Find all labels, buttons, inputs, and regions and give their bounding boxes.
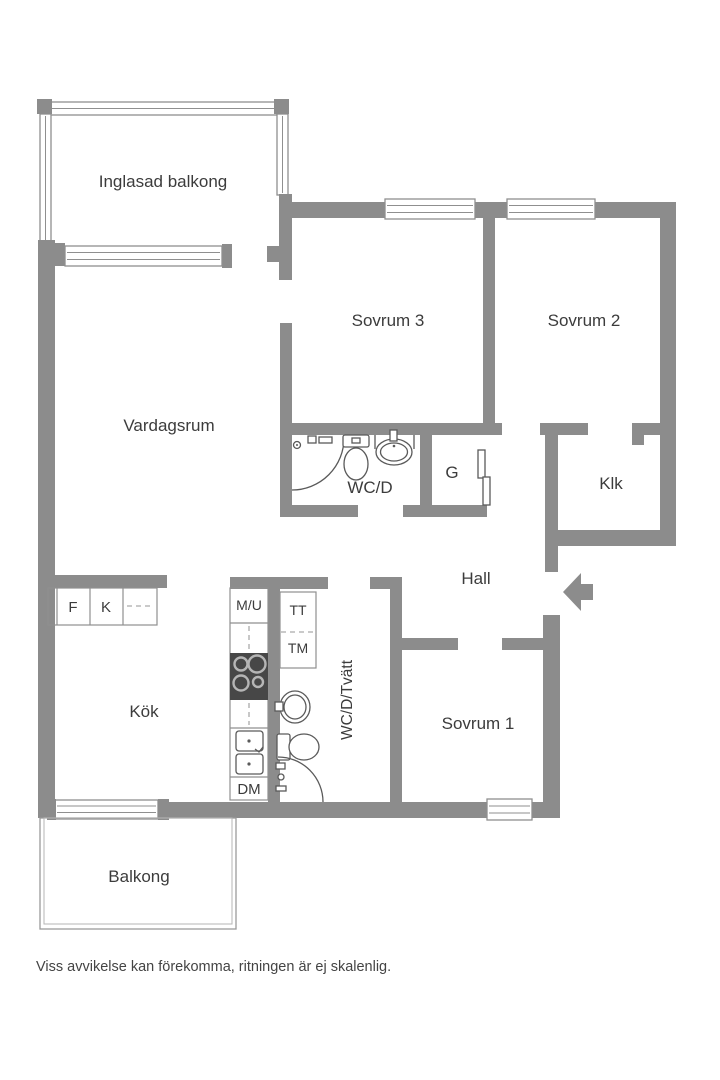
room-label-hall: Hall	[461, 569, 490, 588]
wall-segment-sovrum1-left	[390, 577, 402, 818]
toilet-bowl-icon	[289, 734, 319, 760]
window-end-cap	[47, 799, 56, 820]
wall-segment-left	[38, 240, 55, 818]
burner-icon	[235, 658, 248, 671]
wall-corner	[38, 243, 65, 266]
toilet-button-icon	[352, 438, 360, 443]
wall-segment-wcd-g-divider	[420, 432, 432, 505]
wall-segment-kitchen-top	[38, 575, 167, 588]
closet-door-leaf	[478, 450, 485, 478]
wall-segment-g-bottom	[403, 505, 487, 517]
wall-pier	[267, 246, 280, 262]
fixture-label-fridge: F	[68, 599, 77, 616]
shower-mixer-icon	[308, 436, 316, 443]
balcony-corner-post	[274, 99, 289, 114]
shower-mixer-icon	[276, 786, 286, 791]
shower-mixer-icon	[319, 437, 332, 443]
faucet-icon	[390, 430, 397, 441]
wall-segment-right-upper	[660, 202, 676, 546]
fixture-label-tumble-dryer: TT	[289, 602, 307, 618]
wall-segment-sovrum3-left-lower	[280, 323, 292, 515]
window-kok	[55, 800, 158, 819]
g-closet-door	[478, 450, 490, 505]
wall-segment-klk-top-left	[540, 423, 588, 435]
room-label-vardagsrum: Vardagsrum	[123, 416, 214, 435]
room-label-klk: Klk	[599, 474, 623, 493]
window-sovrum1	[487, 799, 532, 820]
fixture-label-freezer: K	[101, 599, 111, 616]
wall-segment-sovrum1-top-right	[502, 638, 543, 650]
sink-drain-icon	[393, 445, 396, 448]
floorplan-page: Inglasad balkong Vardagsrum Sovrum 3 Sov…	[0, 0, 720, 1080]
wall-segment-sovrum3-left-upper	[279, 194, 292, 280]
window-sovrum2	[507, 199, 595, 219]
entrance-arrow-icon	[563, 573, 593, 611]
wall-segment-klk-left	[545, 425, 558, 572]
wall-segment-kitchen-center	[268, 577, 280, 805]
floorplan-svg: Inglasad balkong Vardagsrum Sovrum 3 Sov…	[0, 0, 720, 1080]
wall-segment-sovrum1-top-left	[402, 638, 458, 650]
wall-segment-top	[280, 202, 676, 218]
room-label-balkong: Balkong	[108, 867, 169, 886]
wall-segment-wcd-bottom	[280, 505, 358, 517]
fixture-label-dishwasher: DM	[237, 781, 260, 798]
wall-jamb	[632, 435, 644, 445]
burner-icon	[234, 676, 249, 691]
walls	[38, 194, 676, 818]
closet-door-leaf	[483, 477, 490, 505]
wall-segment-right-lower	[543, 615, 560, 818]
room-label-inglasad-balkong: Inglasad balkong	[99, 172, 228, 191]
wall-segment-klk-bottom	[553, 530, 676, 546]
wall-segment-sovrum-divider	[483, 218, 495, 423]
room-label-sovrum3: Sovrum 3	[352, 311, 425, 330]
room-label-wcd-tvatt: WC/D/Tvätt	[339, 659, 356, 740]
disclaimer-text: Viss avvikelse kan förekomma, ritningen …	[36, 959, 391, 975]
shower-head-icon	[278, 774, 284, 780]
sink-drain-icon	[247, 762, 250, 765]
burner-icon	[253, 677, 263, 687]
wall-segment-klk-top-right	[632, 423, 660, 435]
window-sovrum3	[385, 199, 475, 219]
faucet-icon	[275, 702, 283, 711]
room-label-sovrum2: Sovrum 2	[548, 311, 621, 330]
window-vardagsrum-balkong	[65, 246, 222, 266]
sink-drain-icon	[247, 739, 250, 742]
fixture-label-washing-machine: TM	[288, 640, 308, 656]
wall-foot	[475, 423, 502, 435]
toilet-tank-icon	[277, 734, 290, 760]
room-label-wcd: WC/D	[347, 478, 392, 497]
room-label-sovrum1: Sovrum 1	[442, 714, 515, 733]
toilet-bowl-icon	[344, 448, 368, 480]
burner-icon	[249, 656, 266, 673]
shower-head-icon	[296, 444, 298, 446]
wcdt-fixtures	[275, 691, 323, 802]
window-end-cap	[222, 244, 232, 268]
room-label-kok: Kök	[129, 702, 159, 721]
shower-mixer-icon	[276, 763, 285, 769]
room-label-g: G	[445, 463, 458, 482]
fixture-label-micro-oven: M/U	[236, 597, 262, 613]
balcony-corner-post	[37, 99, 52, 114]
window-end-cap	[158, 799, 169, 820]
